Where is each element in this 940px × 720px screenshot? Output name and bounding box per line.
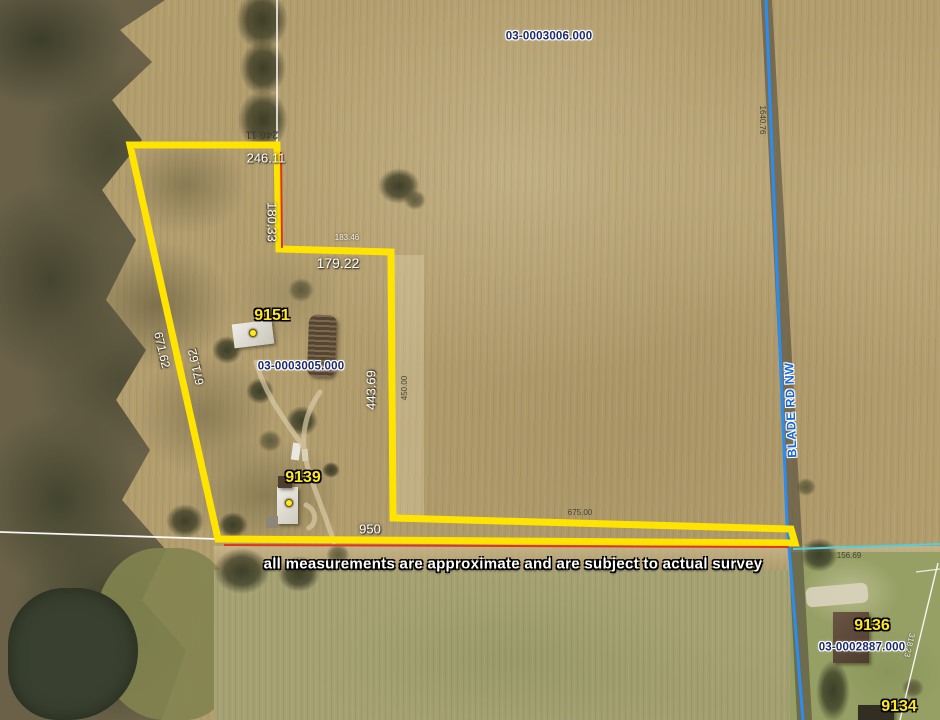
tree-blob xyxy=(322,462,340,478)
measurement-jog-small: 183.46 xyxy=(335,234,359,242)
measurement-east-upper: 180.33 xyxy=(266,202,279,242)
scrub-texture xyxy=(95,95,335,555)
measurement-south-segment: 675.00 xyxy=(568,509,592,517)
parcel-id-southeast: 03-0002887.000 xyxy=(819,642,906,654)
tree-blob xyxy=(166,504,204,538)
measurement-jog: 179.22 xyxy=(317,256,360,270)
tree-blob xyxy=(218,512,248,538)
measurement-south-total: 950 xyxy=(359,523,381,536)
vehicle xyxy=(301,449,308,462)
parcel-id-subject: 03-0003005.000 xyxy=(258,361,345,373)
tree-blob xyxy=(258,430,282,452)
measurement-east-lower-alt: 450.00 xyxy=(401,376,409,400)
map-canvas[interactable]: 03-0003006.000 1640.76 246.11 246.11 180… xyxy=(0,0,940,720)
south-field xyxy=(214,570,794,720)
road-label-blade-rd-nw: BLADE RD NW xyxy=(783,362,799,458)
address-label-9151: 9151 xyxy=(254,308,290,324)
measurement-top-edge: 246.11 xyxy=(247,152,286,165)
tree-blob xyxy=(796,478,816,496)
tree-blob xyxy=(800,538,838,572)
tree-blob xyxy=(214,548,270,594)
tree-blob xyxy=(816,660,850,720)
tree-blob xyxy=(404,190,426,210)
measurement-cyan-line: 156.69 xyxy=(837,552,861,560)
address-point-9151 xyxy=(249,329,257,337)
disclaimer-text: all measurements are approximate and are… xyxy=(264,557,763,572)
field-grass-strip xyxy=(394,255,424,521)
address-label-9134: 9134 xyxy=(881,699,917,715)
address-label-9139: 9139 xyxy=(285,470,321,486)
measurement-road-frontage: 1640.76 xyxy=(758,106,766,135)
measurement-east-lower: 443.69 xyxy=(365,370,378,410)
tree-blob xyxy=(288,278,314,302)
tree-blob xyxy=(240,40,286,96)
address-label-9136: 9136 xyxy=(854,618,890,634)
measurement-top-edge-dark: 246.11 xyxy=(246,129,279,140)
tree-blob xyxy=(286,406,318,436)
tree-blob xyxy=(238,90,288,150)
parcel-id-north: 03-0003006.000 xyxy=(506,31,593,43)
tree-blob xyxy=(246,378,274,404)
building-shed xyxy=(266,516,278,528)
address-point-9139 xyxy=(285,499,293,507)
tree-blob xyxy=(902,678,924,698)
